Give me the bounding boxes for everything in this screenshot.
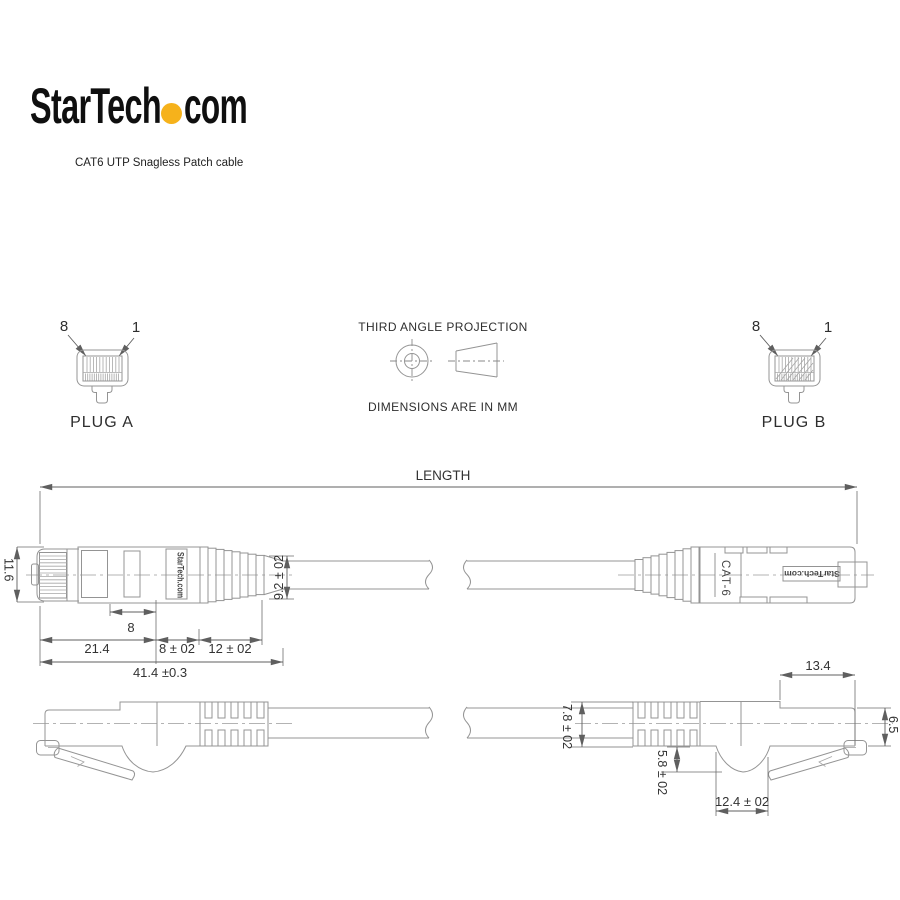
length-dimension: LENGTH	[40, 468, 857, 544]
plug-b-pin8-label: 8	[752, 318, 760, 335]
plug-b-latch-tab	[784, 386, 804, 403]
top-view-assembly: StarTech.com	[2, 547, 875, 680]
side-view-assembly: 7.8 ± 02 5.8 ± 02 12.4 ± 02 13.4 6.5	[33, 658, 900, 816]
plug-a-body-panel1	[82, 551, 108, 598]
spec-sheet: StarTech com CAT6 UTP Snagless Patch cab…	[0, 0, 900, 900]
cable-right-segment	[467, 561, 635, 589]
brand-label-b: StarTech.com	[784, 569, 840, 579]
plug-b-view: 8 1 PLUG B	[752, 318, 832, 431]
plug-a-contact-comb	[86, 374, 119, 381]
dim-9-2: 9.2 ± 02	[272, 555, 286, 600]
dim-6-5: 6.5	[886, 716, 900, 733]
plug-a-contact-pins	[83, 357, 122, 373]
dim-12-tol: 12 ± 02	[208, 641, 251, 656]
plug-a-caption: PLUG A	[70, 414, 134, 431]
plug-a-side-relief-block	[200, 702, 268, 746]
cable-left-segment	[283, 561, 429, 589]
plug-a-leader-pin8	[68, 335, 86, 356]
dim-21-4: 21.4	[84, 641, 109, 656]
plug-b-side-relief-block	[633, 702, 700, 746]
technical-drawing: StarTech com CAT6 UTP Snagless Patch cab…	[0, 0, 900, 900]
plug-a-latch-clip	[54, 748, 134, 780]
dim-7-8: 7.8 ± 02	[560, 704, 574, 749]
cat6-label: CAT-6	[719, 560, 731, 597]
plug-b-side-bottom-outline	[700, 746, 855, 772]
projection-cone	[456, 343, 497, 377]
plug-a-view: 8 1 PLUG A	[60, 318, 140, 431]
plug-a-latch-tab	[92, 386, 112, 403]
plug-a-pin1-label: 1	[132, 319, 140, 336]
projection-block: THIRD ANGLE PROJECTION DIMENSIONS ARE IN…	[358, 320, 528, 414]
logo-text: StarTech	[30, 78, 161, 134]
dim-13-4: 13.4	[805, 658, 830, 673]
product-subtitle: CAT6 UTP Snagless Patch cable	[75, 157, 243, 169]
cable-top-view	[283, 560, 635, 589]
dim-5-8: 5.8 ± 02	[655, 750, 669, 795]
plug-a-body-panel2	[124, 551, 140, 597]
connector-a-side-view	[37, 702, 269, 780]
break-symbol-left	[426, 560, 433, 589]
length-label: LENGTH	[416, 468, 471, 483]
connector-b-top-view: CAT-6 StarTech.com	[635, 547, 867, 603]
header-logo: StarTech com CAT6 UTP Snagless Patch cab…	[30, 78, 247, 169]
plug-b-nose	[838, 562, 867, 587]
dim-41-4: 41.4 ±0.3	[133, 665, 187, 680]
plug-a-side-top-outline	[45, 702, 200, 746]
projection-title: THIRD ANGLE PROJECTION	[358, 320, 528, 334]
cable-side-left-segment	[268, 708, 429, 738]
dim-11-6: 11.6	[2, 558, 16, 581]
logo-tld-text: com	[184, 78, 247, 134]
plug-b-leader-pin8	[760, 335, 778, 356]
plug-a-pin8-label: 8	[60, 318, 68, 335]
cable-side-view	[268, 707, 633, 738]
side-view-dimensions: 7.8 ± 02 5.8 ± 02 12.4 ± 02 13.4 6.5	[560, 658, 900, 816]
top-view-dimensions: 11.6 9.2 ± 02 8 21.4 8 ± 02 12 ± 02 41.4…	[2, 547, 295, 680]
logo-dot-icon	[161, 103, 182, 124]
plug-b-strain-relief-ribs	[635, 547, 699, 603]
break-symbol-side-left	[426, 707, 433, 738]
units-note: DIMENSIONS ARE IN MM	[368, 400, 518, 414]
plug-b-pin1-label: 1	[824, 319, 832, 336]
brand-label-a: StarTech.com	[176, 552, 186, 598]
plug-b-caption: PLUG B	[762, 414, 827, 431]
break-symbol-right	[464, 560, 471, 589]
cable-side-right-segment	[467, 708, 633, 738]
break-symbol-side-right	[464, 707, 471, 738]
dim-8-tol: 8 ± 02	[159, 641, 195, 656]
dim-12-4: 12.4 ± 02	[715, 794, 769, 809]
plug-b-latch-clip	[768, 748, 848, 780]
dim-8: 8	[127, 620, 134, 635]
